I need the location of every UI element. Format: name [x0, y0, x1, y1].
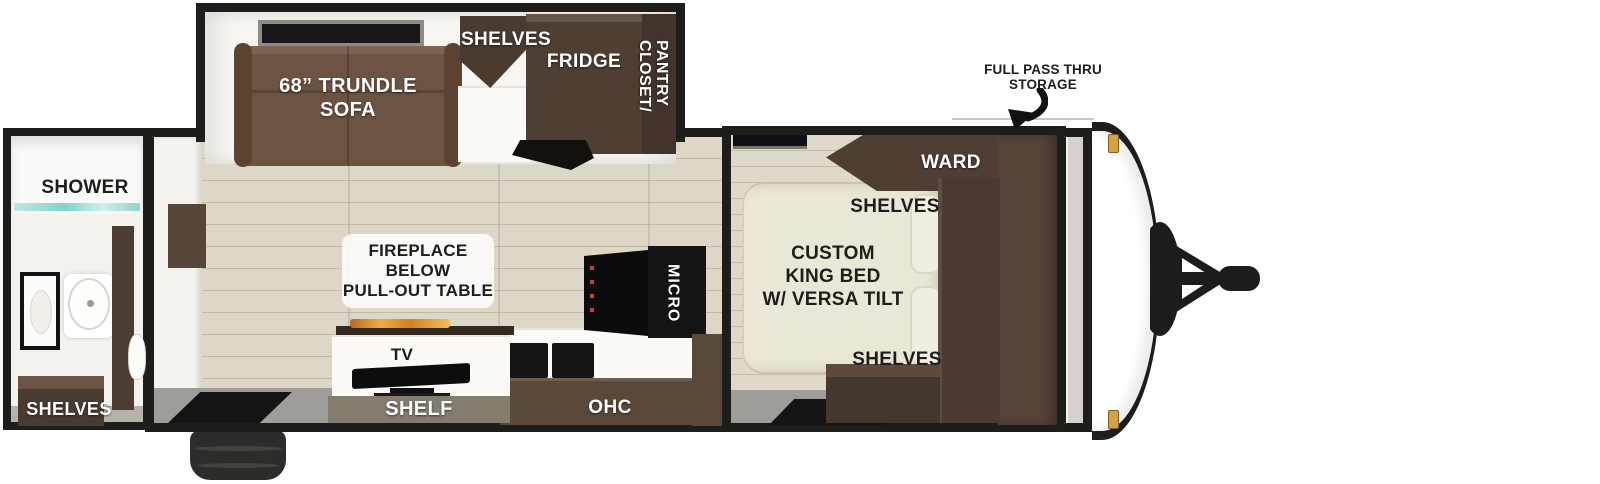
sofa-label: 68” TRUNDLE SOFA — [246, 74, 450, 122]
bed-label-line1: CUSTOM — [747, 242, 919, 265]
sink-drain — [87, 300, 94, 307]
mirror-reflection-oval — [30, 290, 52, 334]
step-ridge — [197, 463, 279, 468]
pass-thru-storage-strip — [1066, 137, 1083, 423]
floorplan-canvas: MICRO OHC TV SHELF FIREPLACE BELOW PULL-… — [0, 0, 1600, 484]
step-ridge — [194, 446, 282, 451]
bathroom-tall-cabinet — [112, 226, 134, 410]
hitch-a-frame — [1150, 216, 1262, 344]
living-left-wall — [154, 137, 202, 399]
bed-label-line2: KING BED — [747, 265, 919, 288]
fireplace-label: FIREPLACE BELOW PULL-OUT TABLE — [342, 241, 494, 301]
fridge-label: FRIDGE — [528, 52, 640, 73]
entry-steps — [190, 430, 286, 480]
kitchen-shelves-label: SHELVES — [446, 30, 566, 51]
fireplace-label-line1: FIREPLACE — [342, 241, 494, 261]
bathroom-sink-basin — [68, 278, 110, 330]
bedroom-shelves-top-label: SHELVES — [831, 197, 959, 218]
wall-cabinet-panel — [168, 204, 206, 268]
bed-label: CUSTOM KING BED W/ VERSA TILT — [747, 242, 919, 311]
shower-label: SHOWER — [29, 178, 141, 199]
bathroom-box: SHOWER SHELVES — [3, 128, 151, 430]
storage-arrow-icon — [998, 88, 1048, 132]
ohc-label: OHC — [575, 398, 645, 419]
tv-label: TV — [384, 346, 420, 365]
bathroom-shelf-top — [18, 376, 104, 389]
marker-light-bottom — [1108, 410, 1119, 429]
bathroom-mirror — [20, 272, 60, 350]
ohc-door — [506, 343, 548, 378]
fireplace-flames — [350, 319, 450, 328]
ward-label: WARD — [894, 153, 1008, 174]
closet-pantry-label: CLOSET/ PANTRY — [636, 40, 670, 136]
bedroom-window — [733, 135, 807, 149]
fireplace-label-line2: BELOW — [342, 261, 494, 281]
bed-label-line3: W/ VERSA TILT — [747, 288, 919, 311]
ohc-cabinet-right-column — [692, 334, 722, 426]
sofa-label-line2: SOFA — [246, 98, 450, 122]
shower-glass-edge — [14, 203, 140, 211]
wardrobe-right-panel — [998, 135, 1057, 425]
ohc-door — [552, 343, 594, 378]
sofa-label-line1: 68” TRUNDLE — [246, 74, 450, 98]
shelf-label: SHELF — [328, 399, 510, 421]
full-pass-thru-line1: FULL PASS THRU — [948, 62, 1138, 77]
micro-indicator-lights — [590, 266, 594, 318]
toilet — [128, 334, 146, 380]
bedroom-box: CUSTOM KING BED W/ VERSA TILT WARD SHELV… — [722, 126, 1066, 432]
bedroom-shelves-unit-bottom — [826, 364, 940, 423]
slide-out-window — [258, 20, 424, 47]
fireplace-label-line3: PULL-OUT TABLE — [342, 281, 494, 301]
marker-light-top — [1108, 134, 1119, 153]
bathroom-shelves-label: SHELVES — [13, 400, 125, 419]
micro-label: MICRO — [664, 252, 681, 334]
bedroom-shelves-bottom-label: SHELVES — [833, 350, 961, 371]
